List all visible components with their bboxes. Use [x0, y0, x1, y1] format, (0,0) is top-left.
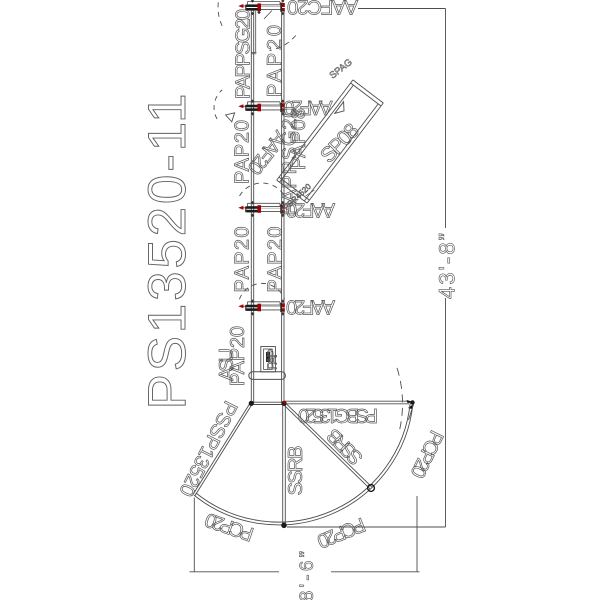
- svg-text:PS13520-11: PS13520-11: [138, 94, 197, 410]
- svg-text:PAPPSG20: PAPPSG20: [233, 9, 255, 99]
- svg-text:PSBG13520: PSBG13520: [298, 404, 378, 426]
- svg-text:PAP20: PAP20: [232, 227, 254, 293]
- svg-text:PAP20: PAP20: [227, 326, 249, 386]
- svg-text:PAP20: PAP20: [265, 227, 287, 293]
- svg-text:AAF20: AAF20: [286, 296, 335, 318]
- svg-text:PAP20: PAP20: [231, 120, 253, 184]
- svg-text:PAP: PAP: [265, 349, 280, 370]
- svg-text:AAF20: AAF20: [284, 96, 333, 118]
- svg-text:SSRB: SSRB: [285, 446, 307, 496]
- svg-text:PAP20: PAP20: [264, 25, 286, 97]
- svg-text:AAFC20: AAFC20: [287, 0, 358, 19]
